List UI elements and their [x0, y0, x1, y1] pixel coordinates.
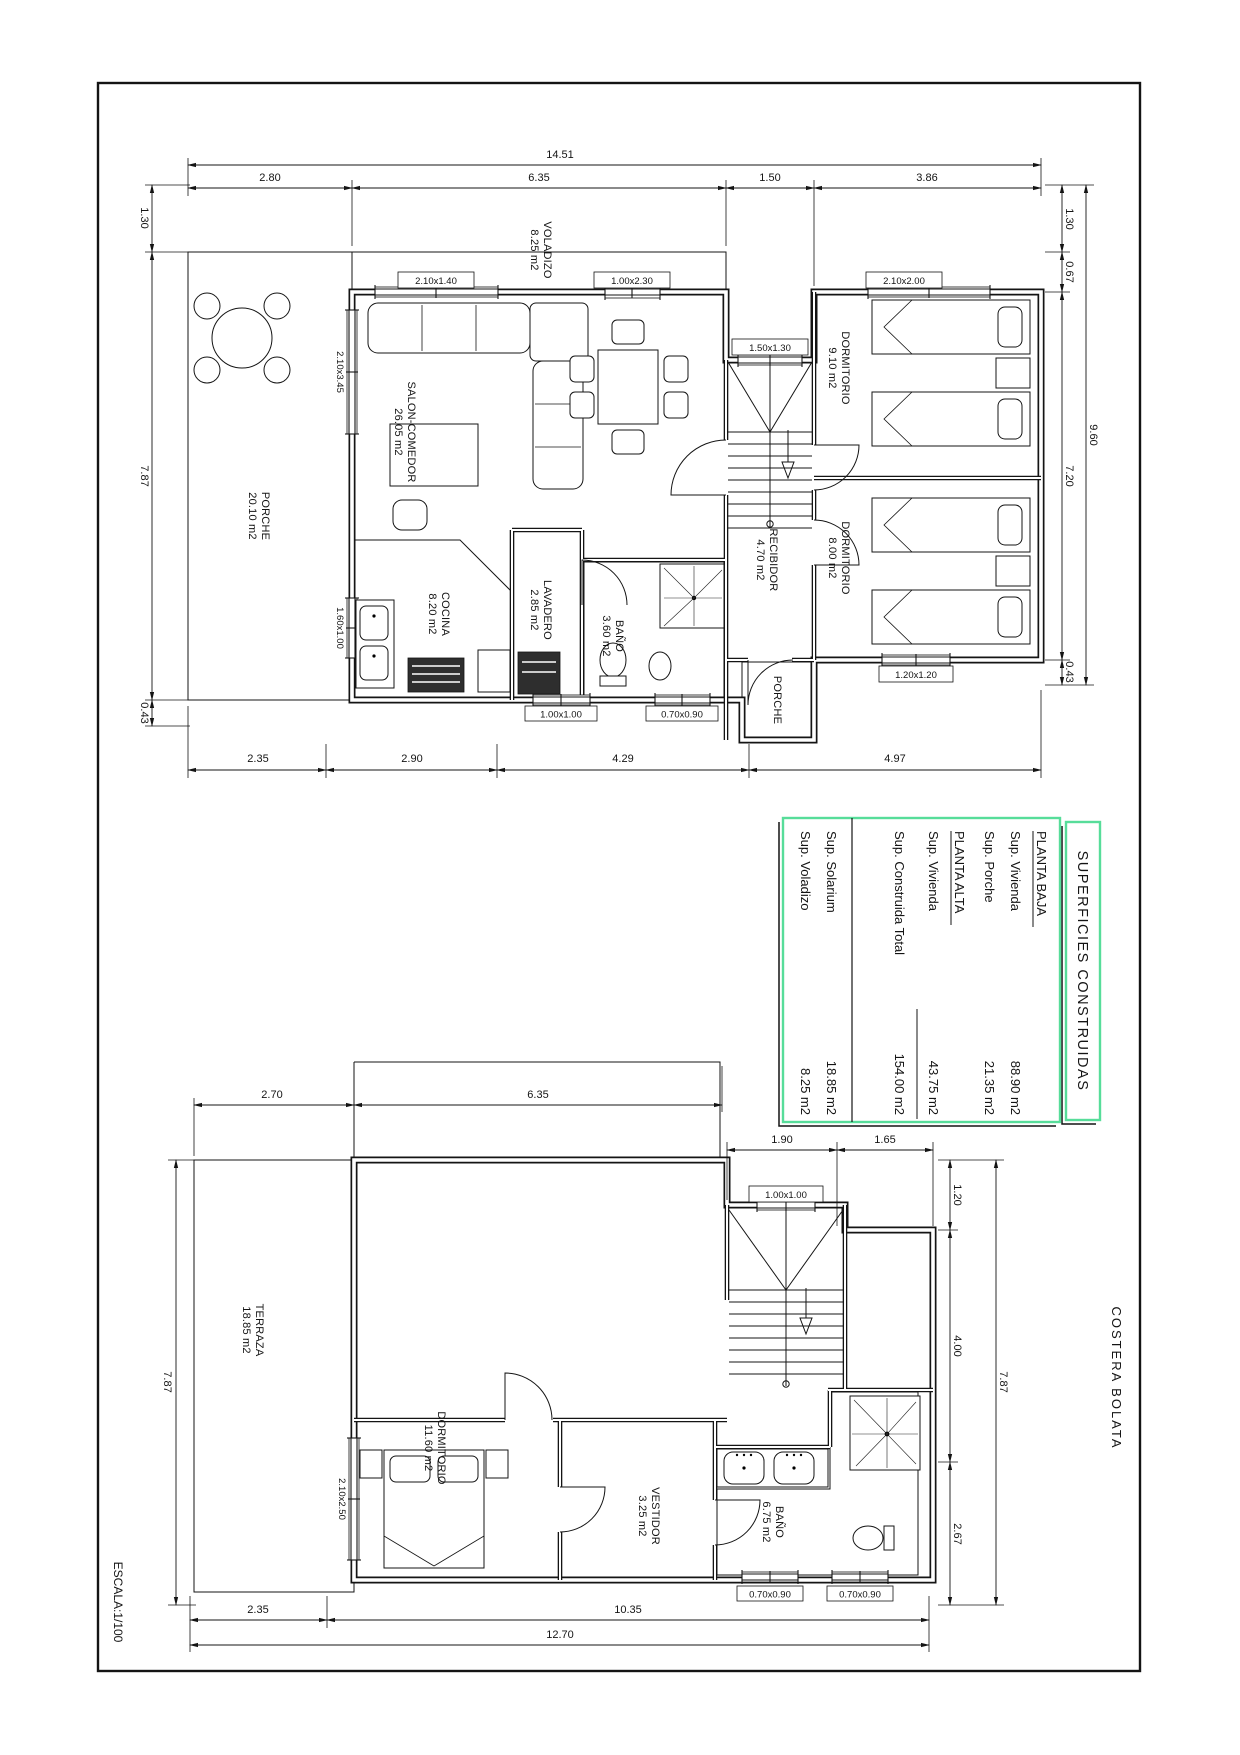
dim-label: 1.20 — [951, 1184, 963, 1205]
dim-label: 1.30 — [1063, 208, 1075, 229]
table-row-value: 88.90 m2 — [1008, 1061, 1023, 1115]
armchair-symbol — [393, 500, 427, 530]
pa-room-labels: TERRAZA18.85 m2 DORMITORIO11.60 m2 VESTI… — [240, 1304, 786, 1545]
table-row-label: Sup. Vivienda — [1008, 831, 1023, 912]
window-label: 1.60x1.00 — [334, 607, 345, 649]
table-header-planta-baja: PLANTA BAJA — [1034, 831, 1049, 916]
nightstand-symbol — [360, 1450, 382, 1478]
stair-down-arrow — [782, 462, 794, 478]
dim-label: 9.60 — [1087, 424, 1099, 445]
table-row-value: 8.25 m2 — [798, 1068, 813, 1115]
room-label-dormitorio-1: DORMITORIO9.10 m2 — [826, 331, 851, 405]
bed-symbol — [872, 300, 1030, 446]
window-label: 1.00x1.00 — [765, 1190, 807, 1201]
nightstand-symbol — [996, 358, 1030, 388]
room-label-terraza: TERRAZA18.85 m2 — [240, 1304, 265, 1357]
dim-label: 12.70 — [546, 1629, 574, 1641]
dim-label: 4.29 — [612, 753, 633, 765]
terrace-tiles — [194, 1160, 354, 1592]
stove-symbol — [408, 658, 464, 692]
dim-label: 2.80 — [259, 172, 280, 184]
table-total-value: 154.00 m2 — [892, 1054, 907, 1115]
dim-label: 6.35 — [527, 1089, 548, 1101]
dim-label: 10.35 — [614, 1604, 642, 1616]
room-label-cocina: COCINA8.20 m2 — [426, 592, 451, 636]
dim-label: 1.65 — [874, 1134, 895, 1146]
bidet-symbol — [649, 652, 671, 680]
street-label: COSTERA BOLATA — [1109, 1306, 1124, 1449]
room-label-bano: BAÑO6.75 m2 — [760, 1501, 786, 1542]
double-sink-symbol — [717, 1449, 828, 1487]
bed-symbol — [872, 498, 1030, 644]
dim-label: 0.43 — [138, 702, 150, 723]
dim-label: 7.87 — [161, 1371, 173, 1392]
room-label-rear-porche: PORCHE — [771, 676, 783, 724]
table-total-label: Sup. Construida Total — [892, 831, 907, 955]
dim-label: 4.00 — [951, 1335, 963, 1356]
planta-alta-plan: 1.00x1.00 2.10x2.50 0.70x0.90 0.70x0.90 … — [161, 1062, 1009, 1652]
table-row-value: 43.75 m2 — [926, 1061, 941, 1115]
table-row-label: Sup. Voladizo — [798, 831, 813, 911]
floor-plan-drawing: 2.10x1.40 1.00x2.30 1.50x1.30 2.10x2.00 … — [0, 0, 1240, 1755]
washer-symbol — [518, 652, 560, 694]
dim-label: 2.67 — [951, 1523, 963, 1544]
scale-label: ESCALA:1/100 — [111, 1562, 125, 1643]
overhang-outline — [354, 1062, 720, 1160]
dim-label: 0.43 — [1063, 661, 1075, 682]
fridge-symbol — [478, 650, 510, 692]
dim-label: 1.50 — [759, 172, 780, 184]
room-label-lavadero: LAVADERO2.85 m2 — [528, 580, 553, 640]
room-label-voladizo: VOLADIZO8.25 m2 — [528, 221, 553, 278]
nightstand-symbol — [996, 556, 1030, 586]
room-label-dormitorio-2: DORMITORIO8.00 m2 — [826, 521, 851, 595]
porch-tiles — [188, 252, 352, 700]
stairs-symbol — [728, 362, 812, 528]
stairs-symbol — [729, 1210, 843, 1387]
dim-label: 1.90 — [771, 1134, 792, 1146]
table-row-label: Sup. Porche — [982, 831, 997, 903]
dim-label: 0.67 — [1063, 261, 1075, 282]
window-label: 0.70x0.90 — [661, 710, 703, 721]
door-label: 1.00x2.30 — [611, 276, 653, 287]
window-label: 0.70x0.90 — [749, 1590, 791, 1601]
room-label-vestidor: VESTIDOR3.25 m2 — [636, 1487, 661, 1545]
dim-label: 14.51 — [546, 149, 574, 161]
dim-label: 7.20 — [1063, 465, 1075, 486]
dim-label: 7.87 — [997, 1371, 1009, 1392]
room-label-recibidor: RECIBIDOR4.70 m2 — [754, 529, 779, 592]
table-title: SUPERFICIES CONSTRUIDAS — [1074, 851, 1090, 1092]
dim-label: 3.86 — [916, 172, 937, 184]
window-label: 1.00x1.00 — [540, 710, 582, 721]
nightstand-symbol — [486, 1450, 508, 1478]
dim-label: 2.90 — [401, 753, 422, 765]
toilet-symbol — [853, 1526, 894, 1550]
dim-label: 7.87 — [138, 465, 150, 486]
window-label: 2.10x2.00 — [883, 276, 925, 287]
drawing-sheet: 2.10x1.40 1.00x2.30 1.50x1.30 2.10x2.00 … — [0, 0, 1240, 1755]
table-row-label: Sup. Solarium — [824, 831, 839, 913]
porch-table-symbol — [194, 293, 290, 383]
table-row-label: Sup. Vivienda — [926, 831, 941, 912]
dim-label: 6.35 — [528, 172, 549, 184]
dim-label: 2.70 — [261, 1089, 282, 1101]
dim-label: 4.97 — [884, 753, 905, 765]
dim-label: 1.30 — [138, 207, 150, 228]
planta-baja-plan: 2.10x1.40 1.00x2.30 1.50x1.30 2.10x2.00 … — [138, 149, 1099, 778]
window-label: 2.10x1.40 — [415, 276, 457, 287]
dim-label: 2.35 — [247, 1604, 268, 1616]
summary-table: PLANTA BAJA Sup. Vivienda 88.90 m2 Sup. … — [779, 818, 1100, 1126]
window-label: 2.10x2.50 — [336, 1478, 347, 1520]
window-label: 1.20x1.20 — [895, 670, 937, 681]
window-label: 1.50x1.30 — [749, 343, 791, 354]
table-header-planta-alta: PLANTA ALTA — [952, 831, 967, 914]
shower-symbol — [660, 564, 724, 628]
window-label: 2.10x3.45 — [334, 351, 345, 393]
dim-label: 2.35 — [247, 753, 268, 765]
table-row-value: 21.35 m2 — [982, 1061, 997, 1115]
table-row-value: 18.85 m2 — [824, 1061, 839, 1115]
pa-dimensions: 2.70 6.35 1.90 1.65 1.20 4.00 2.67 7.87 … — [161, 1066, 1009, 1652]
room-label-porche: PORCHE20.10 m2 — [246, 492, 271, 540]
window-label: 0.70x0.90 — [839, 1590, 881, 1601]
shower-symbol — [850, 1396, 920, 1470]
